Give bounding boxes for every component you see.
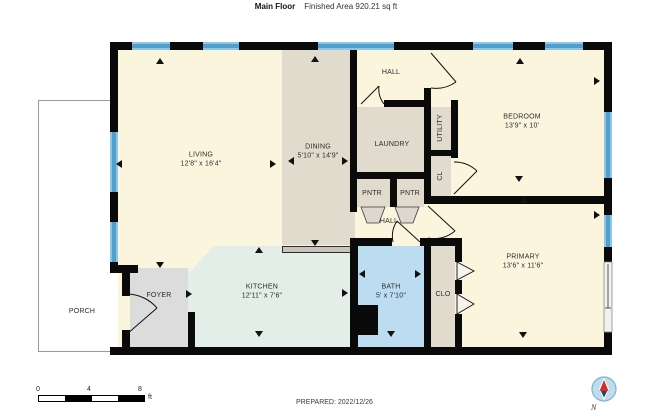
arrow-dining-up: [311, 56, 319, 62]
door-swing-overlay: [0, 0, 652, 416]
door-primary-leaf: [428, 206, 455, 231]
arrow-living-left: [116, 160, 122, 168]
arrow-primary-up: [520, 197, 528, 203]
arrow-bath-right: [415, 270, 421, 278]
compass-north-label: N: [591, 403, 596, 412]
sliding-door-primary: [604, 262, 612, 332]
arrow-bedroom-right: [594, 77, 600, 85]
label-pantry-2: PNTR: [400, 190, 420, 199]
arrow-bath-left: [359, 270, 365, 278]
door-cl-arc: [454, 162, 477, 171]
label-foyer: FOYER: [146, 292, 171, 301]
label-pantry-1: PNTR: [362, 190, 382, 199]
label-hall-mid: HALL: [380, 218, 398, 227]
arrow-living-down: [156, 262, 164, 268]
label-kitchen: KITCHEN 12'11" x 7'6": [242, 284, 282, 301]
label-bath: BATH 5' x 7'10": [376, 284, 406, 301]
scale-bar: 0 4 8 ft: [36, 386, 156, 402]
arrow-bedroom-down: [515, 176, 523, 182]
scale-bar-unit: ft: [148, 394, 152, 401]
door-hall-bedroom-arc: [431, 82, 456, 88]
door-pantry-2: [395, 207, 419, 223]
label-primary: PRIMARY 13'6" x 11'6": [503, 254, 543, 271]
arrow-dining-down: [311, 240, 319, 246]
scale-bar-segments: [38, 395, 145, 402]
prepared-date: PREPARED: 2022/12/26: [296, 399, 373, 406]
arrow-bath-down: [387, 331, 395, 337]
label-hall-top: HALL: [382, 69, 400, 78]
door-foyer-leaf: [127, 308, 157, 334]
compass: N: [588, 375, 622, 415]
arrow-bedroom-up: [516, 58, 524, 64]
label-bedroom: BEDROOM 13'9" x 10': [503, 114, 541, 131]
door-laundry-arc: [379, 86, 384, 104]
arrow-dining-right: [342, 157, 348, 165]
label-living: LIVING 12'8" x 16'4": [181, 152, 222, 169]
door-laundry-leaf: [361, 86, 379, 104]
compass-icon: [588, 375, 622, 405]
arrow-living-up: [156, 58, 164, 64]
arrow-primary-right: [594, 211, 600, 219]
arrow-foyer-right: [186, 290, 192, 298]
scale-bar-ticks: 0 4 8: [36, 386, 156, 395]
floorplan-canvas: Main Floor Finished Area 920.21 sq ft: [0, 0, 652, 416]
arrow-kitchen-down: [255, 331, 263, 337]
label-porch: PORCH: [69, 308, 95, 317]
label-cl: CL: [437, 171, 446, 180]
arrow-dining-left: [288, 157, 294, 165]
arrow-kitchen-up: [255, 247, 263, 253]
label-dining: DINING 5'10" x 14'9": [298, 144, 339, 161]
arrow-primary-down: [519, 332, 527, 338]
label-utility: UTILITY: [437, 114, 446, 141]
arrow-kitchen-right: [342, 289, 348, 297]
door-bath-leaf: [397, 221, 420, 242]
label-clo: CLO: [436, 291, 451, 300]
label-laundry: LAUNDRY: [375, 141, 410, 150]
door-clo-bifold-1: [457, 262, 474, 280]
arrow-living-right: [270, 160, 276, 168]
door-hall-bedroom-leaf: [431, 53, 456, 82]
door-primary-arc: [428, 231, 455, 239]
door-cl-leaf: [454, 171, 477, 194]
door-clo-bifold-2: [457, 294, 474, 314]
